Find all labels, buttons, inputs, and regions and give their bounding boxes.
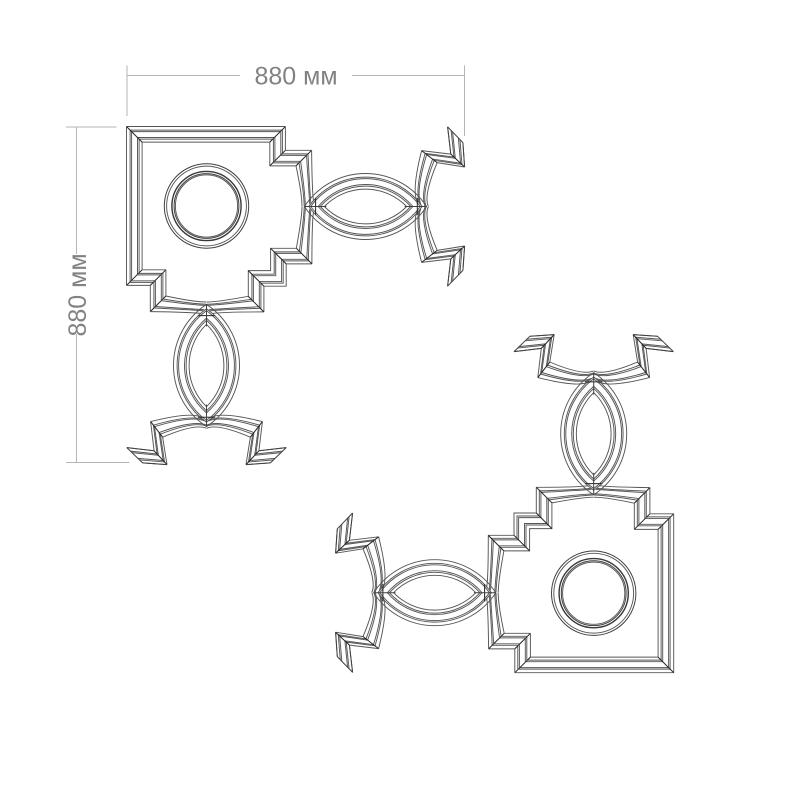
svg-text:880 мм: 880 мм	[254, 63, 337, 91]
svg-text:880 мм: 880 мм	[64, 253, 92, 336]
